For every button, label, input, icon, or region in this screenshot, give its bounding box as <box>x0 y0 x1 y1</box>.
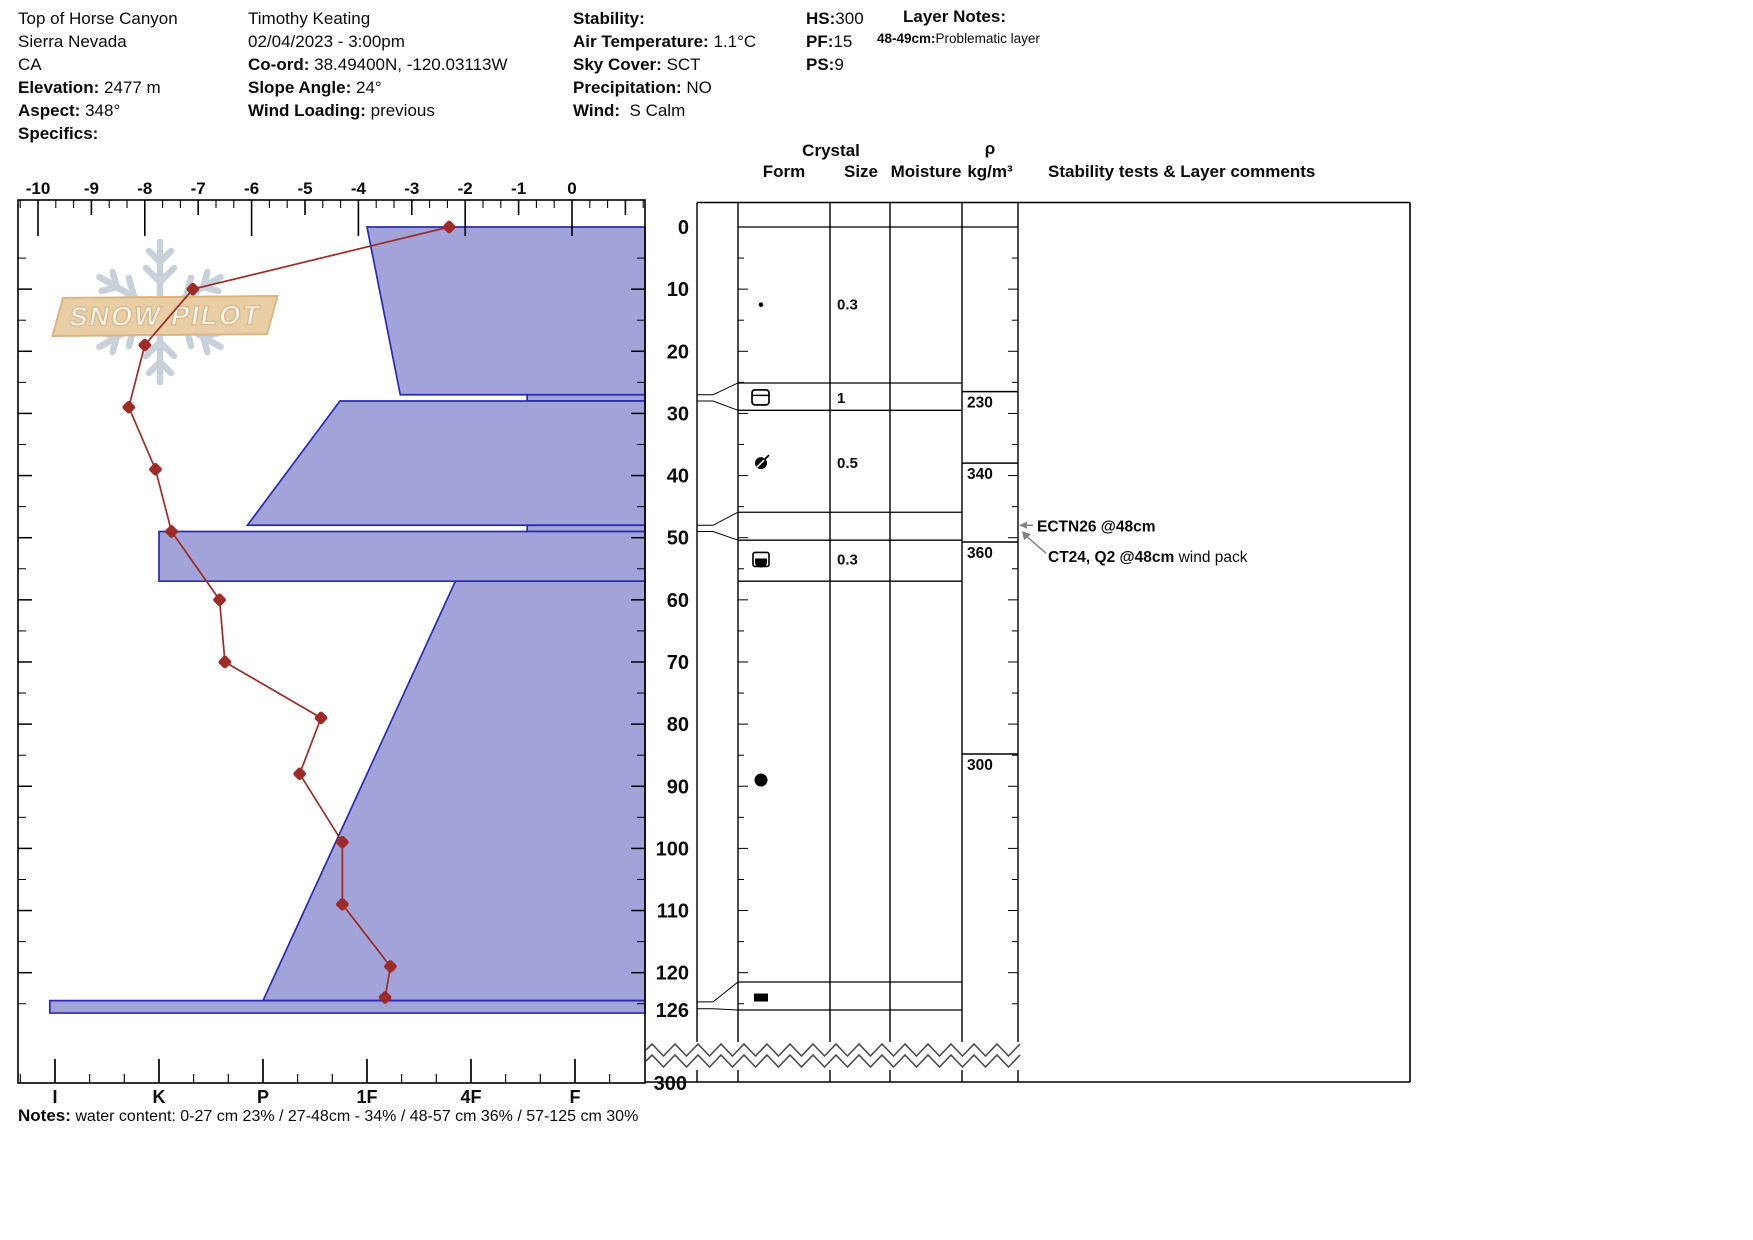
crystal-rounded-grains-icon <box>755 774 768 787</box>
temp-axis-label: -5 <box>297 179 312 198</box>
density-value: 360 <box>967 545 993 562</box>
depth-label: 90 <box>667 776 689 798</box>
depth-label: 40 <box>667 466 689 488</box>
depth-label: 80 <box>667 714 689 736</box>
temp-axis-label: 0 <box>567 179 576 198</box>
header-form: Form <box>763 162 806 181</box>
temp-axis-label: -4 <box>351 179 367 198</box>
temp-axis-label: -8 <box>137 179 152 198</box>
temp-axis-label: -1 <box>511 179 526 198</box>
temperature-point <box>148 462 163 477</box>
crystal-size-value: 1 <box>837 390 845 407</box>
crystal-size-value: 0.3 <box>837 551 858 568</box>
density-value: 300 <box>967 757 993 774</box>
temperature-point <box>212 592 227 607</box>
depth-label: 120 <box>656 963 689 985</box>
hardness-axis-label: P <box>257 1087 269 1107</box>
stability-test-label: ECTN26 @48cm <box>1037 518 1156 535</box>
stability-tests: ECTN26 @48cmCT24, Q2 @48cm wind pack <box>1019 518 1248 566</box>
snow-profile-chart: -10-9-8-7-6-5-4-3-2-10IKP1F4FF0102030405… <box>0 0 1753 1240</box>
hardness-axis-label: F <box>570 1087 581 1107</box>
depth-label: 126 <box>656 1000 689 1022</box>
temperature-point <box>292 766 307 781</box>
thin-layer-flag <box>697 512 738 540</box>
stability-test-label: CT24, Q2 @48cm wind pack <box>1048 549 1248 566</box>
depth-label: 30 <box>667 403 689 425</box>
crystal-ice-lens-icon <box>754 994 768 1002</box>
pit-notes: Notes: water content: 0-27 cm 23% / 27-4… <box>18 1106 638 1126</box>
hardness-axis-label: 1F <box>356 1087 377 1107</box>
layer-table <box>645 203 1410 1083</box>
density-value: 340 <box>967 466 993 483</box>
crystal-crust-icon <box>752 390 769 405</box>
depth-label: 10 <box>667 279 689 301</box>
depth-label: 100 <box>656 838 689 860</box>
temp-axis-label: -6 <box>244 179 259 198</box>
hardness-layer-bar <box>50 1001 645 1013</box>
hardness-layer-bar <box>367 227 645 395</box>
thin-layer-flag <box>697 982 738 1010</box>
depth-labels: 0102030405060708090100110120126300 <box>654 217 689 1095</box>
hardness-layer-bar <box>263 581 645 1000</box>
test-arrow-head <box>1019 522 1027 529</box>
density-column: 230340360300 <box>967 395 993 774</box>
hardness-layer-bar <box>527 395 645 401</box>
header-density-unit: kg/m³ <box>967 162 1013 181</box>
temperature-point <box>218 655 233 670</box>
temp-axis-label: -2 <box>458 179 473 198</box>
hardness-layer-bar <box>527 525 645 531</box>
depth-label: 60 <box>667 590 689 612</box>
snowpilot-report: Top of Horse Canyon Sierra Nevada CA Ele… <box>0 0 1753 1240</box>
crystal-rounded-facets-icon <box>764 455 769 460</box>
temp-axis-label: -3 <box>404 179 419 198</box>
crystal-forms: 0.310.50.3 <box>752 297 858 1002</box>
depth-label: 20 <box>667 341 689 363</box>
crystal-size-value: 0.3 <box>837 297 858 314</box>
scale-break <box>646 1042 1021 1070</box>
temp-axis-label: -7 <box>191 179 206 198</box>
temp-axis-label: -10 <box>26 179 51 198</box>
depth-label: 50 <box>667 528 689 550</box>
depth-label: 0 <box>678 217 689 239</box>
density-value: 230 <box>967 395 993 412</box>
crystal-size-value: 0.5 <box>837 455 858 472</box>
header-moisture: Moisture <box>891 162 962 181</box>
depth-label: 110 <box>657 901 689 923</box>
header-size: Size <box>844 162 878 181</box>
temperature-point <box>314 711 329 726</box>
table-headers: CrystalFormSizeMoistureρkg/m³Stability t… <box>763 139 1316 181</box>
thin-layer-flags <box>697 383 738 1010</box>
hardness-layer-bar <box>159 531 645 581</box>
header-stability-comments: Stability tests & Layer comments <box>1048 162 1315 181</box>
hardness-layer-bar <box>247 401 645 525</box>
header-density-rho: ρ <box>985 139 996 158</box>
thin-layer-flag <box>697 383 738 410</box>
hardness-axis-label: I <box>52 1087 57 1107</box>
temperature-point <box>121 400 136 415</box>
hardness-axis-label: K <box>153 1087 166 1107</box>
temp-axis-label: -9 <box>84 179 99 198</box>
header-crystal: Crystal <box>802 141 860 160</box>
hardness-axis-label: 4F <box>460 1087 481 1107</box>
depth-label: 70 <box>667 652 689 674</box>
crystal-pp-dot-icon <box>759 302 764 307</box>
depth-bottom-label: 300 <box>654 1073 687 1095</box>
